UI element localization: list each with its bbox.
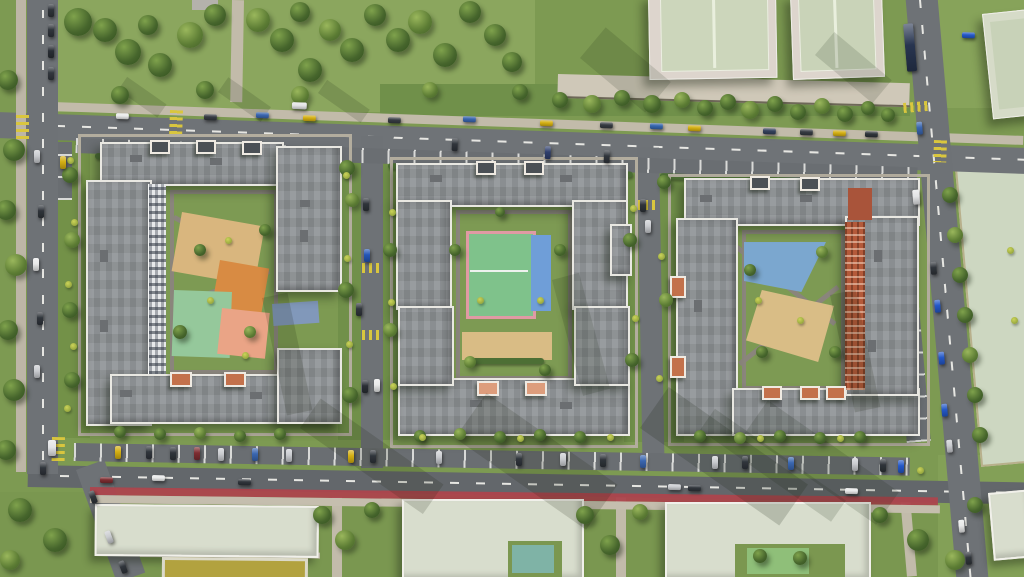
bush <box>64 405 71 412</box>
roof-vent-4 <box>120 390 132 397</box>
roof-vent-17 <box>100 250 108 262</box>
bush <box>390 383 397 390</box>
crosswalk-right-top-2 <box>933 140 947 162</box>
car <box>204 114 217 120</box>
tree <box>3 139 25 161</box>
tree <box>270 28 294 52</box>
left-road-sidewalk <box>16 0 26 472</box>
entrance-canopy-white-7 <box>800 177 820 191</box>
car <box>34 365 40 378</box>
car <box>48 24 54 37</box>
car <box>100 477 113 483</box>
roof-vent-18 <box>100 320 108 332</box>
tree <box>744 264 756 276</box>
tree <box>274 428 286 440</box>
tree <box>861 101 875 115</box>
entrance-canopy-terracotta-5 <box>762 386 782 400</box>
roof-vent-6 <box>430 175 442 182</box>
tree2 <box>422 82 438 98</box>
bush <box>757 435 764 442</box>
sports-field-green <box>466 231 536 319</box>
tree2 <box>945 550 965 570</box>
car <box>362 380 368 393</box>
bush <box>632 315 639 322</box>
bush <box>389 209 396 216</box>
tree2 <box>947 227 963 243</box>
bush <box>419 434 426 441</box>
crosswalk-mid-road-1 <box>362 263 382 273</box>
car <box>763 128 776 134</box>
tree2 <box>177 22 203 48</box>
entrance-canopy-white-3 <box>242 141 262 155</box>
tree <box>502 52 522 72</box>
tree <box>115 39 141 65</box>
car <box>60 156 66 169</box>
tree <box>790 104 806 120</box>
car <box>286 449 292 462</box>
car <box>516 453 522 466</box>
car <box>852 458 858 471</box>
bush <box>658 253 665 260</box>
bush <box>607 434 614 441</box>
car <box>303 115 316 121</box>
bush <box>477 297 484 304</box>
car <box>540 120 553 126</box>
bush <box>630 205 637 212</box>
car-van <box>912 189 920 205</box>
tree2 <box>962 347 978 363</box>
sports-field-line <box>470 270 528 272</box>
tree <box>194 244 206 256</box>
tree <box>8 498 32 522</box>
tree <box>138 15 158 35</box>
hedge-courtyard2 <box>468 358 544 364</box>
car <box>941 403 948 416</box>
car <box>48 67 54 80</box>
tree <box>449 244 461 256</box>
tree2 <box>5 254 27 276</box>
entrance-canopy-white-5 <box>524 161 544 175</box>
bush <box>1007 247 1014 254</box>
car <box>436 451 442 464</box>
car <box>252 448 258 461</box>
tree <box>907 529 929 551</box>
car <box>116 113 129 119</box>
car <box>800 129 813 135</box>
tree <box>62 302 78 318</box>
entrance-canopy-terracotta-4 <box>525 381 547 396</box>
tree <box>93 18 117 42</box>
roof-vent-7 <box>560 175 572 182</box>
tree <box>837 106 853 122</box>
bush <box>1011 317 1018 324</box>
tree <box>767 96 783 112</box>
entrance-canopy-white-6 <box>750 176 770 190</box>
tree2 <box>632 504 648 520</box>
roof-vent-1 <box>130 155 142 162</box>
tree <box>643 95 661 113</box>
car <box>600 122 613 128</box>
car <box>965 551 972 564</box>
tree2 <box>244 326 256 338</box>
roof-vent-15 <box>868 340 876 352</box>
car <box>946 439 953 452</box>
tree <box>62 167 78 183</box>
bottom-slab-2-playground <box>512 545 554 573</box>
tree <box>148 53 172 77</box>
tree2 <box>408 10 432 34</box>
tree <box>957 307 973 323</box>
tree <box>173 325 187 339</box>
car <box>48 4 54 17</box>
tree <box>298 58 322 82</box>
car-van <box>48 440 56 456</box>
tree <box>774 430 786 442</box>
crosswalk-topleft-road <box>16 115 29 139</box>
playground2-sand <box>462 332 552 360</box>
tree <box>720 94 736 110</box>
car <box>218 448 224 461</box>
tree <box>574 431 586 443</box>
block1-tower-ne <box>276 146 342 292</box>
car <box>370 450 376 463</box>
car <box>152 475 165 481</box>
tree <box>552 92 568 108</box>
tree <box>204 4 226 26</box>
car <box>962 32 975 38</box>
tree <box>967 497 983 513</box>
roof-vent-12 <box>694 300 702 312</box>
tree2 <box>816 246 828 258</box>
tree <box>623 233 637 247</box>
car-van <box>292 102 307 110</box>
car <box>388 117 401 123</box>
tree2 <box>734 432 746 444</box>
tree <box>952 267 968 283</box>
car <box>194 447 200 460</box>
entrance-canopy-terracotta-6 <box>800 386 820 400</box>
car <box>40 462 46 475</box>
car <box>374 379 380 392</box>
tree <box>881 108 895 122</box>
bush <box>71 219 78 226</box>
tree <box>756 346 768 358</box>
car <box>560 453 566 466</box>
bottom-slab-4 <box>988 489 1024 561</box>
car <box>238 479 251 485</box>
tree2 <box>246 8 270 32</box>
tree2 <box>64 232 80 248</box>
car <box>833 130 846 136</box>
block1-white-facade <box>148 184 166 374</box>
bush <box>837 435 844 442</box>
tree2 <box>383 323 397 337</box>
car <box>545 146 551 159</box>
car <box>930 261 937 274</box>
tree <box>512 84 528 100</box>
bottom-court-yellow <box>162 557 308 577</box>
bush <box>537 297 544 304</box>
tree2 <box>741 101 759 119</box>
tree <box>697 100 713 116</box>
tree <box>196 81 214 99</box>
tree <box>793 551 807 565</box>
car <box>916 121 923 134</box>
tree <box>313 506 331 524</box>
tree <box>484 24 506 46</box>
car <box>645 220 651 233</box>
car <box>363 198 369 211</box>
tree <box>829 346 841 358</box>
tree <box>3 379 25 401</box>
tree2 <box>659 293 673 307</box>
tree <box>386 28 410 52</box>
bush <box>656 375 663 382</box>
car <box>640 199 646 212</box>
tree <box>972 427 988 443</box>
bush <box>225 237 232 244</box>
roof-vent-9 <box>560 402 572 409</box>
tree <box>111 86 129 104</box>
tree <box>576 506 594 524</box>
car <box>712 456 718 469</box>
entrance-canopy-white-1 <box>150 140 170 154</box>
tree <box>433 43 457 67</box>
entrance-canopy-terracotta-7 <box>826 386 846 400</box>
car <box>640 455 646 468</box>
tree <box>814 432 826 444</box>
roof-vent-10 <box>700 195 712 202</box>
car <box>604 150 610 163</box>
block2-wing-ne-ext <box>610 224 632 276</box>
car <box>958 519 965 532</box>
entrance-canopy-terracotta-2 <box>224 372 246 387</box>
left-road-dashes <box>42 10 44 460</box>
car <box>256 112 269 118</box>
tree <box>259 224 271 236</box>
block3-terracotta-corner <box>848 188 872 220</box>
car <box>934 299 941 312</box>
bush <box>388 299 395 306</box>
tree <box>290 2 310 22</box>
tree <box>872 507 888 523</box>
bush <box>797 317 804 324</box>
tree <box>614 90 630 106</box>
tree2 <box>335 530 355 550</box>
car <box>38 205 44 218</box>
tree <box>340 38 364 62</box>
car <box>463 116 476 122</box>
tree <box>234 430 246 442</box>
aerial-residential-complex-render <box>0 0 1024 577</box>
tree <box>657 175 671 189</box>
tree <box>64 372 80 388</box>
tree <box>364 4 386 26</box>
tree2 <box>464 356 476 368</box>
tree <box>554 244 566 256</box>
roof-vent-11 <box>800 195 812 202</box>
car <box>668 484 681 490</box>
car <box>880 459 886 472</box>
car <box>146 446 152 459</box>
tree <box>64 8 92 36</box>
roof-vent-5 <box>250 392 262 399</box>
crosswalk-top-road <box>169 110 183 134</box>
car <box>364 249 370 262</box>
roof-vent-16 <box>300 230 308 242</box>
car <box>33 258 39 271</box>
mid-road-west <box>361 136 383 468</box>
car <box>452 138 458 151</box>
tree <box>600 535 620 555</box>
car <box>600 454 606 467</box>
entrance-canopy-terracotta-9 <box>670 356 686 378</box>
entrance-canopy-terracotta-1 <box>170 372 192 387</box>
entrance-canopy-white-4 <box>476 161 496 175</box>
tree <box>342 387 358 403</box>
car <box>115 446 121 459</box>
tree <box>364 502 380 518</box>
tree2 <box>345 193 359 207</box>
car <box>34 150 40 163</box>
tree <box>942 187 958 203</box>
tree2 <box>814 98 830 114</box>
tree <box>495 207 505 217</box>
bush <box>343 172 350 179</box>
car <box>742 456 748 469</box>
tree2 <box>454 428 466 440</box>
car <box>788 457 794 470</box>
tree <box>694 430 706 442</box>
car <box>845 488 858 494</box>
car <box>48 45 54 58</box>
tree <box>625 353 639 367</box>
tree <box>494 431 506 443</box>
car <box>356 303 362 316</box>
car <box>688 125 701 131</box>
tree2 <box>319 19 341 41</box>
bush <box>67 157 74 164</box>
tree <box>114 426 126 438</box>
car <box>37 312 43 325</box>
tree <box>459 1 481 23</box>
tree <box>854 431 866 443</box>
tree <box>534 429 546 441</box>
roof-vent-2 <box>210 158 222 165</box>
bush <box>65 281 72 288</box>
tree <box>539 364 551 376</box>
block2-wing-nw <box>396 200 452 310</box>
bush <box>242 352 249 359</box>
bush <box>755 297 762 304</box>
tree <box>338 282 354 298</box>
tree2 <box>674 92 690 108</box>
entrance-canopy-white-2 <box>196 140 216 154</box>
bush <box>207 297 214 304</box>
tree <box>967 387 983 403</box>
roof-vent-14 <box>874 250 882 262</box>
tree <box>154 428 166 440</box>
roof-vent-3 <box>300 200 310 207</box>
car <box>650 123 663 129</box>
block2-wing-sw <box>398 306 454 386</box>
tree2 <box>0 550 20 570</box>
car <box>898 460 904 473</box>
tree2 <box>583 95 601 113</box>
bush <box>517 435 524 442</box>
bush <box>346 341 353 348</box>
tree <box>43 528 67 552</box>
car <box>348 450 354 463</box>
bush <box>344 255 351 262</box>
entrance-canopy-terracotta-8 <box>670 276 686 298</box>
tree <box>753 549 767 563</box>
car <box>938 351 945 364</box>
car <box>170 447 176 460</box>
tree <box>383 243 397 257</box>
crosswalk-mid-road-2 <box>362 330 382 340</box>
car <box>865 131 878 137</box>
bush <box>917 467 924 474</box>
bush <box>70 343 77 350</box>
bottom-slab-1 <box>95 504 319 558</box>
tree2 <box>194 427 206 439</box>
car <box>688 485 701 491</box>
